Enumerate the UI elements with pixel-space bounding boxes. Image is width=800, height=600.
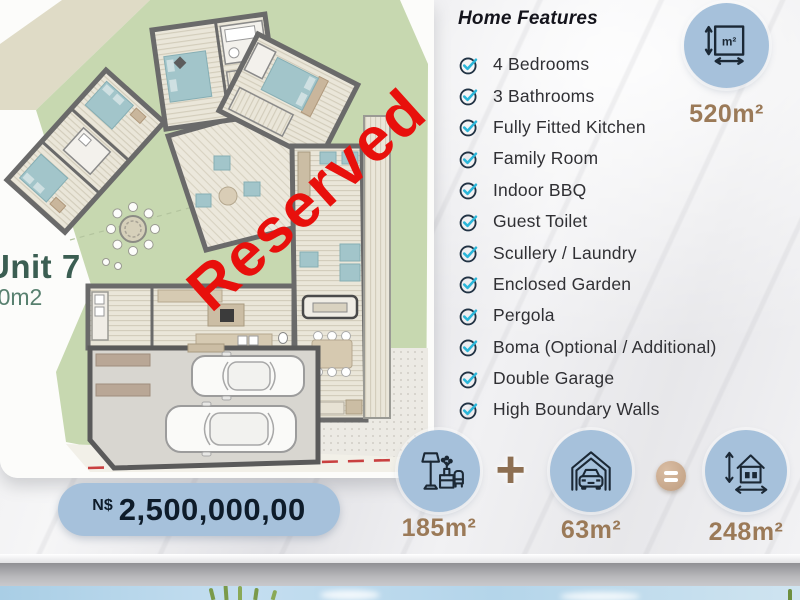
- feature-label: High Boundary Walls: [493, 399, 660, 420]
- feature-item: Fully Fitted Kitchen: [458, 112, 717, 143]
- feature-item: Family Room: [458, 143, 717, 174]
- feature-label: Guest Toilet: [493, 211, 588, 232]
- feature-item: Boma (Optional / Additional): [458, 332, 717, 363]
- check-icon: [458, 368, 480, 390]
- plant-leaf: [271, 590, 278, 600]
- unit-name: Unit 7: [0, 248, 81, 286]
- garage-area-value: 63m²: [550, 516, 632, 545]
- total-area-value: 248m²: [705, 518, 787, 547]
- feature-label: Family Room: [493, 148, 598, 169]
- price-currency: N$: [92, 497, 112, 515]
- feature-label: Enclosed Garden: [493, 274, 631, 295]
- check-icon: [458, 305, 480, 327]
- features-title: Home Features: [458, 8, 598, 30]
- house-dimensions-icon: [719, 444, 773, 498]
- plant-leaf: [238, 586, 242, 600]
- garage: [90, 344, 318, 468]
- feature-item: Indoor BBQ: [458, 175, 717, 206]
- check-icon: [458, 242, 480, 264]
- car-2: [166, 402, 296, 456]
- kitchen: [88, 286, 294, 348]
- feature-item: Enclosed Garden: [458, 269, 717, 300]
- feature-label: Boma (Optional / Additional): [493, 337, 717, 358]
- feature-label: 3 Bathrooms: [493, 86, 594, 107]
- area-m2-icon: m²: [699, 18, 755, 74]
- feature-item: 4 Bedrooms: [458, 49, 717, 80]
- feature-item: Double Garage: [458, 363, 717, 394]
- counter-edge-highlight: [0, 554, 800, 563]
- plant-leaf: [253, 588, 259, 600]
- car-1: [192, 352, 304, 400]
- equals-bar: [664, 478, 678, 482]
- feature-item: Pergola: [458, 300, 717, 331]
- check-icon: [458, 85, 480, 107]
- feature-label: Fully Fitted Kitchen: [493, 117, 646, 138]
- feature-item: Guest Toilet: [458, 206, 717, 237]
- price-amount: 2,500,000,00: [119, 492, 306, 528]
- stand-size-badge: m²: [684, 3, 769, 88]
- check-icon: [458, 211, 480, 233]
- plus-operator: +: [488, 444, 533, 496]
- features-list: 4 Bedrooms 3 Bathrooms Fully Fitted Kitc…: [458, 49, 717, 426]
- feature-label: Pergola: [493, 305, 555, 326]
- interior-furniture-icon: [412, 444, 466, 498]
- feature-item: High Boundary Walls: [458, 394, 717, 425]
- equals-bar: [664, 471, 678, 475]
- feature-label: Double Garage: [493, 368, 614, 389]
- feature-label: 4 Bedrooms: [493, 54, 589, 75]
- feature-label: Scullery / Laundry: [493, 243, 637, 264]
- m2-icon-label: m²: [721, 34, 736, 48]
- background-photo-strip: [0, 586, 800, 600]
- plant-leaf: [223, 586, 228, 600]
- feature-item: 3 Bathrooms: [458, 80, 717, 111]
- unit-stand-size: 520m2: [0, 284, 42, 311]
- interior-area-badge: [398, 430, 480, 512]
- total-area-badge: [705, 430, 787, 512]
- check-icon: [458, 54, 480, 76]
- equals-operator: [656, 461, 686, 491]
- check-icon: [458, 116, 480, 138]
- check-icon: [458, 179, 480, 201]
- cloud: [320, 590, 380, 600]
- price-badge: N$ 2,500,000,00: [58, 483, 340, 536]
- stand-size-value: 520m²: [684, 100, 769, 129]
- interior-area-value: 185m²: [398, 514, 480, 543]
- cloud: [560, 592, 640, 600]
- check-icon: [458, 273, 480, 295]
- counter-edge-shadow: [0, 563, 800, 586]
- check-icon: [458, 336, 480, 358]
- plant-leaf: [209, 588, 216, 600]
- check-icon: [458, 399, 480, 421]
- check-icon: [458, 148, 480, 170]
- garage-car-icon: [564, 444, 618, 498]
- plant-leaf: [788, 589, 792, 600]
- feature-label: Indoor BBQ: [493, 180, 586, 201]
- feature-item: Scullery / Laundry: [458, 237, 717, 268]
- garage-area-badge: [550, 430, 632, 512]
